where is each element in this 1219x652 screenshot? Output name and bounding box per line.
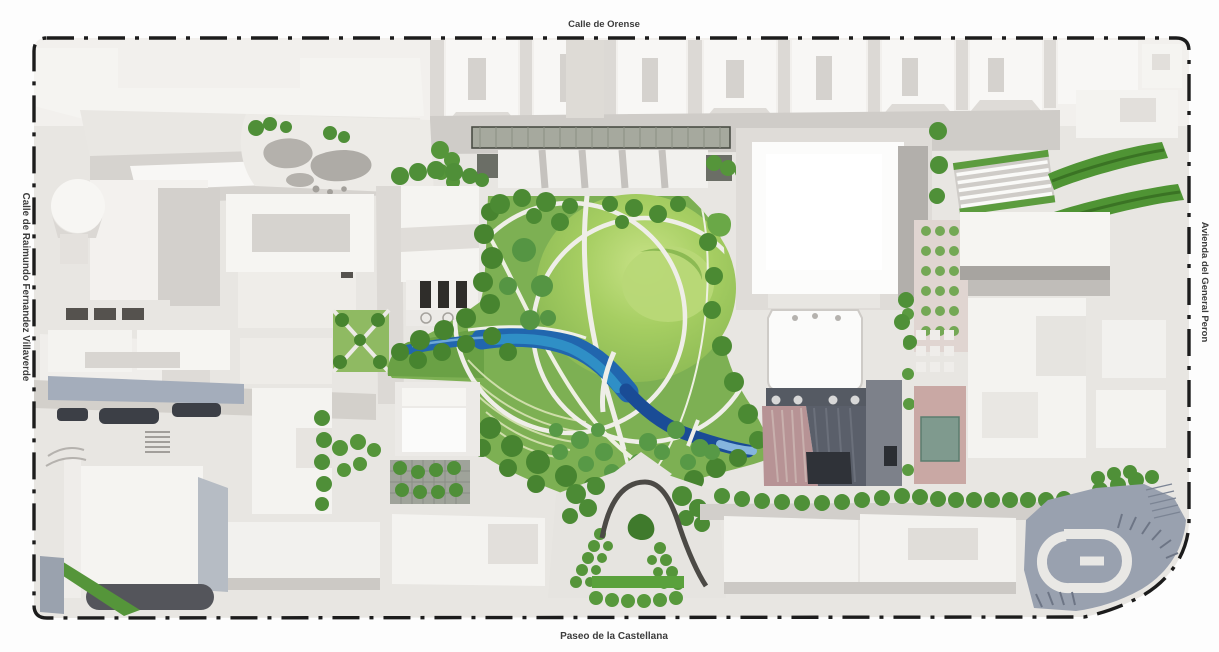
svg-text:Avienda del General Peron: Avienda del General Peron	[1199, 222, 1210, 343]
svg-text:Calle de Raimundo Fernandez Vi: Calle de Raimundo Fernandez Villaverde	[20, 193, 31, 382]
svg-text:Calle de Orense: Calle de Orense	[568, 19, 640, 30]
svg-text:Paseo de la Castellana: Paseo de la Castellana	[560, 631, 668, 642]
